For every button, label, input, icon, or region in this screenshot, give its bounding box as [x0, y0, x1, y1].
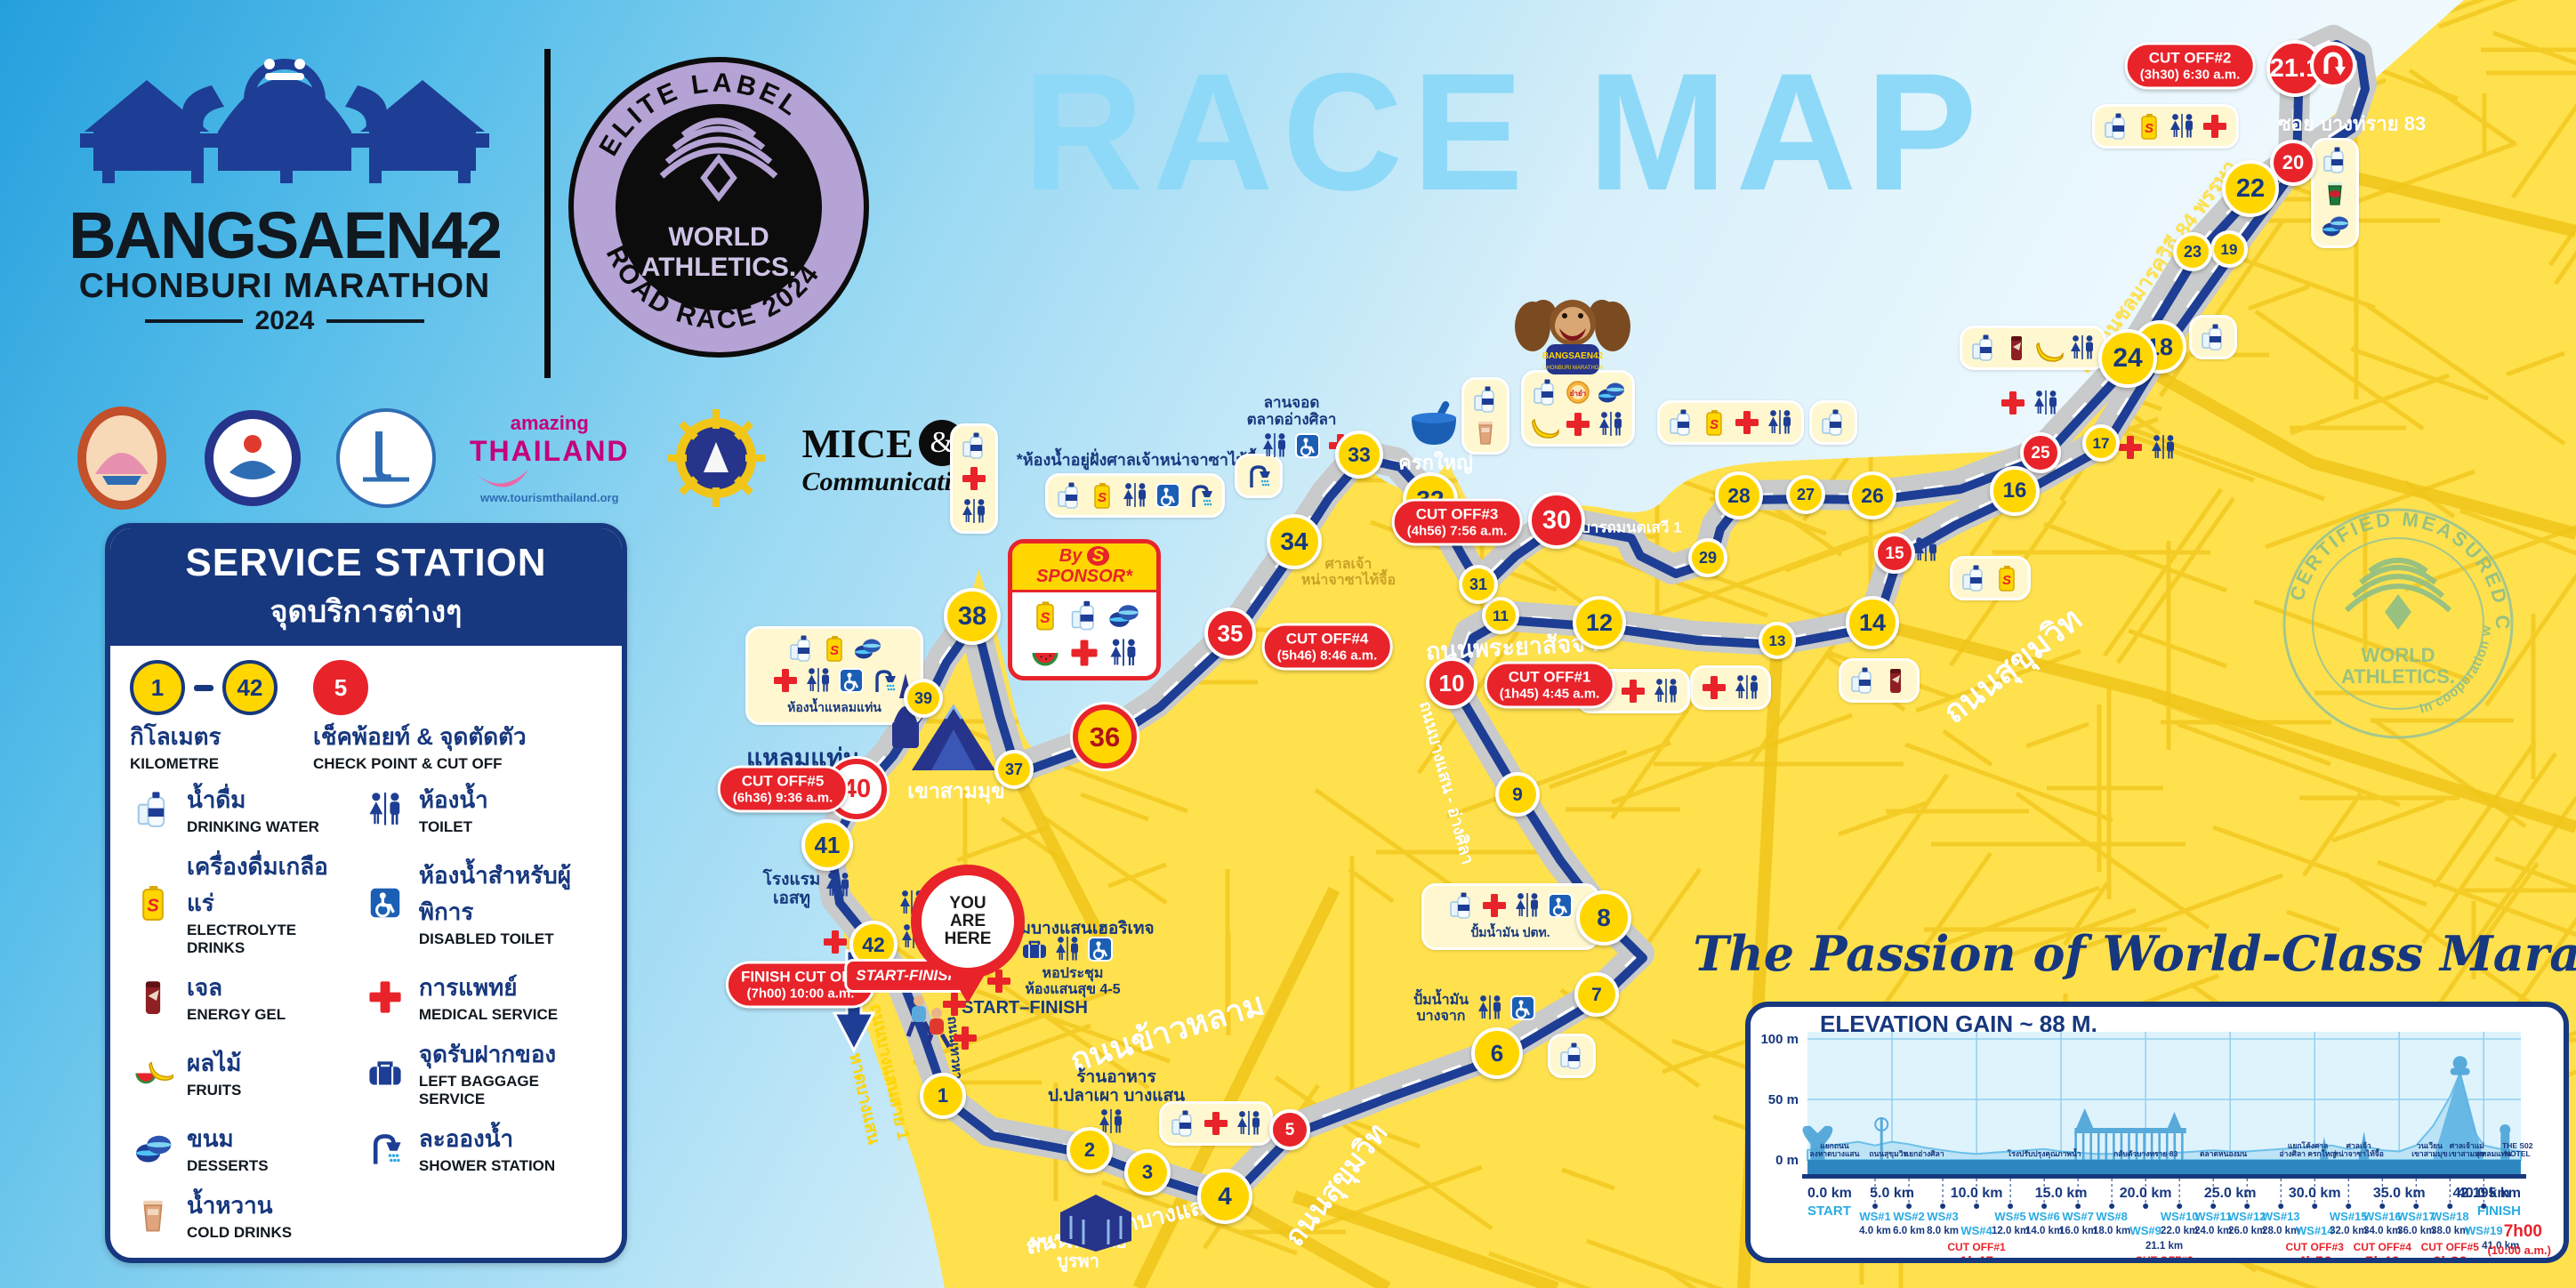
landmark-label-9: ปั้มน้ำมัน บางจาก	[1413, 993, 1469, 1025]
cutoff-label-co4: CUT OFF#4(5h46) 8:46 a.m.	[1262, 624, 1393, 671]
km-marker-19: 19	[2210, 230, 2248, 268]
mascot-temple-logo-icon	[53, 18, 516, 205]
km-marker-3: 3	[1124, 1149, 1171, 1195]
svg-text:WS#7: WS#7	[2062, 1210, 2093, 1223]
u-turn-icon	[2310, 42, 2356, 88]
km-marker-27: 27	[1786, 475, 1825, 514]
service-box-8: ยำยำ	[1521, 370, 1635, 447]
water-icon	[1446, 890, 1477, 921]
svg-text:WS#14: WS#14	[2296, 1224, 2334, 1237]
legend-item-drinking-water: น้ำดื่มDRINKING WATER	[130, 782, 339, 836]
partner-logos-row: amazing THAILAND www.tourismthailand.org…	[76, 405, 980, 511]
svg-text:WS#1: WS#1	[1859, 1210, 1890, 1223]
logo-subtitle: CHONBURI MARATHON	[53, 267, 516, 306]
svg-text:WS#16: WS#16	[2363, 1210, 2402, 1223]
macarons-icon	[130, 1128, 176, 1169]
legend-item-toilet: ห้องน้ำTOILET	[362, 782, 602, 836]
km-marker-11: 11	[1482, 597, 1519, 634]
dash-icon	[194, 685, 213, 691]
svg-text:28.0 km: 28.0 km	[2262, 1226, 2299, 1236]
toilet-icon	[1052, 934, 1083, 964]
water-icon	[1666, 407, 1696, 438]
legend-kilometre-item: 1 42 กิโลเมตร KILOMETRE	[130, 660, 278, 773]
legend-item-energy-gel: เจลENERGY GEL	[130, 970, 339, 1024]
water-icon	[1054, 480, 1084, 511]
toilet-icon	[1260, 431, 1290, 461]
cutoff-label-co3: CUT OFF#3(4h56) 7:56 a.m.	[1392, 499, 1523, 546]
service-box-6: S	[1657, 400, 1804, 445]
svg-text:S: S	[1710, 417, 1719, 432]
electrolyte-icon: S	[1699, 407, 1729, 438]
svg-text:16.0 km: 16.0 km	[2059, 1226, 2097, 1236]
km-marker-30: 30	[1528, 492, 1585, 549]
svg-text:WS#18: WS#18	[2431, 1210, 2469, 1223]
km-marker-15: 15	[1874, 533, 1915, 574]
gel-icon	[130, 977, 176, 1018]
svg-text:10.0 km: 10.0 km	[1951, 1186, 2003, 1201]
svg-text:14.0 km: 14.0 km	[2025, 1226, 2063, 1236]
service-box-20: S	[1045, 473, 1225, 518]
toilet-icon	[1234, 1108, 1264, 1139]
km-marker-37: 37	[994, 750, 1034, 789]
water-icon	[130, 789, 176, 830]
svg-text:ลงหาดบางแสน: ลงหาดบางแสน	[1809, 1149, 1859, 1158]
legend-body: 1 42 กิโลเมตร KILOMETRE 5 เช็คพ้อยท์ & จ…	[110, 646, 622, 1258]
legend-km-last-badge: 42	[222, 660, 278, 715]
landmark-label-8: ร้านอาหาร ป.ปลาเผา บางแสน	[1048, 1068, 1185, 1107]
service-box-14	[1159, 1101, 1273, 1146]
km-marker-9: 9	[1495, 772, 1540, 817]
svg-text:0 m: 0 m	[1775, 1153, 1799, 1168]
legend-km-first-badge: 1	[130, 660, 185, 715]
legend-item-cold-drinks: น้ำหวานCOLD DRINKS	[130, 1187, 339, 1242]
svg-text:WORLD: WORLD	[668, 222, 769, 252]
shower-icon	[1186, 480, 1216, 511]
svg-text:18.0 km: 18.0 km	[2093, 1226, 2130, 1236]
amazing-line2: THAILAND	[470, 435, 630, 468]
electrolyte-icon: S	[1992, 563, 2022, 593]
legend-items-grid: น้ำดื่มDRINKING WATER ห้องน้ำTOILET S เค…	[130, 782, 602, 1242]
water-icon	[1067, 599, 1101, 632]
svg-text:CUT OFF#3: CUT OFF#3	[2286, 1241, 2345, 1253]
water-icon	[2101, 111, 2131, 141]
svg-text:6h36: 6h36	[2433, 1253, 2467, 1258]
water-icon	[1530, 377, 1560, 407]
gel-icon	[2001, 333, 2032, 363]
water-icon	[2198, 322, 2228, 352]
km-marker-34: 34	[1267, 514, 1322, 569]
water-icon	[1470, 384, 1501, 415]
world-athletics-elite-label-badge: ELITE LABEL ROAD RACE 2024 WORLD ATHLETI…	[559, 43, 879, 372]
toilet-icon	[1732, 672, 1762, 703]
km-marker-23: 23	[2173, 232, 2212, 271]
shower-icon	[362, 1128, 408, 1169]
legend-item-shower-station: ละอองน้ำSHOWER STATION	[362, 1121, 602, 1175]
electrolyte-icon: S	[2134, 111, 2164, 141]
you-are-here-pin: YOUAREHERE	[911, 865, 1025, 1003]
svg-text:เขาสามมุข: เขาสามมุข	[2411, 1149, 2448, 1159]
service-box-9	[1461, 377, 1509, 455]
km-marker-13: 13	[1759, 622, 1796, 659]
gorilla-decor: BANGSAEN42CHONBURI MARATHON	[1506, 293, 1639, 380]
km-marker-33: 33	[1335, 431, 1383, 479]
legend-cp-th: เช็คพ้อยท์ & จุดตัดตัว	[313, 719, 527, 755]
service-box-13	[1690, 665, 1771, 710]
svg-text:6.0 km: 6.0 km	[1893, 1226, 1925, 1236]
svg-text:S: S	[1098, 490, 1107, 505]
toilet-icon	[1120, 480, 1150, 511]
baggage-icon	[362, 1052, 408, 1093]
svg-text:21.1 km: 21.1 km	[2145, 1241, 2183, 1252]
toilet-icon	[803, 665, 833, 696]
toilet-icon	[2148, 432, 2178, 463]
svg-text:42.195 km: 42.195 km	[2452, 1186, 2521, 1201]
disabled-icon	[1292, 431, 1323, 461]
water-icon	[1818, 407, 1848, 438]
disabled-icon	[1508, 993, 1538, 1023]
legend-checkpoint-item: 5 เช็คพ้อยท์ & จุดตัดตัว CHECK POINT & C…	[313, 660, 527, 773]
km-marker-35: 35	[1204, 608, 1256, 659]
toilet-icon	[1475, 993, 1505, 1023]
landmark-label-1: เขาสามมุข	[907, 780, 1005, 803]
svg-text:7h00: 7h00	[2504, 1222, 2542, 1241]
page-title: RACE MAP	[1023, 36, 1986, 228]
water-icon	[959, 431, 989, 461]
svg-text:34.0 km: 34.0 km	[2363, 1226, 2401, 1236]
km-marker-29: 29	[1688, 538, 1727, 577]
svg-text:8.0 km: 8.0 km	[1927, 1226, 1959, 1236]
landmark-label-4: ศาลเจ้า หน่าจาซาไท้จื้อ	[1301, 557, 1396, 589]
km-marker-7: 7	[1574, 972, 1619, 1017]
medical-icon	[362, 977, 408, 1018]
toilet-icon	[823, 870, 853, 900]
service-box-17: ปั้มน้ำมัน ปตท.	[1421, 883, 1599, 950]
service-box-label: ห้องน้ำแหลมแท่น	[787, 698, 881, 718]
medical-icon	[770, 665, 801, 696]
km-marker-2: 2	[1067, 1127, 1113, 1173]
toilet-icon	[2067, 333, 2097, 363]
water-icon	[1847, 665, 1878, 696]
svg-text:4.0 km: 4.0 km	[1859, 1226, 1891, 1236]
disabled-icon	[365, 882, 406, 923]
landmark-label-11: *ห้องน้ำอยู่ฝั่งศาลเจ้าหน่าจาซาไท้จื้อ	[1017, 451, 1266, 469]
electrolyte-icon: S	[133, 882, 173, 923]
service-box-24	[1019, 934, 1115, 964]
legend-title-en: SERVICE STATION	[119, 541, 613, 585]
svg-text:32.0 km: 32.0 km	[2330, 1226, 2367, 1236]
legend-km-en: KILOMETRE	[130, 755, 278, 773]
medical-icon	[1618, 676, 1648, 706]
amazing-line1: amazing	[470, 412, 630, 435]
disabled-icon	[1545, 890, 1575, 921]
legend-item-left-baggage-service: จุดรับฝากของLEFT BAGGAGE SERVICE	[362, 1036, 602, 1108]
yumyum-icon: ยำยำ	[1563, 377, 1593, 407]
svg-text:WS#10: WS#10	[2161, 1210, 2199, 1223]
svg-text:ยำยำ: ยำยำ	[1570, 390, 1586, 398]
svg-text:35.0 km: 35.0 km	[2373, 1186, 2426, 1201]
toilet-icon	[365, 789, 406, 830]
svg-text:25.0 km: 25.0 km	[2204, 1186, 2257, 1201]
tourism-authority-of-thailand-seal-icon	[336, 408, 436, 508]
legend-item-disabled-toilet: ห้องน้ำสำหรับผู้พิการDISABLED TOILET	[362, 849, 602, 957]
medical-icon	[959, 463, 989, 494]
svg-text:WS#11: WS#11	[2194, 1210, 2232, 1223]
water-icon	[133, 789, 173, 830]
svg-text:50 m: 50 m	[1768, 1092, 1799, 1107]
svg-text:WS#5: WS#5	[1994, 1210, 2025, 1223]
toilet-icon	[2031, 388, 2061, 418]
km-marker-17: 17	[2082, 424, 2120, 462]
svg-text:ถนนสุขุมวิท: ถนนสุขุมวิท	[1869, 1149, 1908, 1159]
svg-text:ตลาดหนองมน: ตลาดหนองมน	[2200, 1149, 2247, 1158]
legend-km-th: กิโลเมตร	[130, 719, 278, 755]
medical-icon	[1998, 388, 2028, 418]
landmark-label-2: ครกใหญ่	[1398, 453, 1473, 475]
svg-text:20.0 km: 20.0 km	[2120, 1186, 2172, 1201]
km-marker-36: 36	[1073, 704, 1137, 769]
km-marker-31: 31	[1459, 565, 1498, 604]
macarons-icon	[133, 1128, 173, 1169]
sponsor-band: By S SPONSOR*	[1012, 543, 1156, 592]
electrolyte-icon: S	[1087, 480, 1117, 511]
divider	[544, 49, 551, 378]
service-box-16	[1475, 993, 1538, 1023]
gel-icon	[1880, 665, 1911, 696]
medical-icon	[1067, 636, 1101, 670]
elevation-chart-panel: ELEVATION GAIN ~ 88 M.แยกถนนลงหาดบางแสนถ…	[1745, 1002, 2569, 1263]
harbour-department-seal-icon	[664, 406, 769, 511]
svg-text:ATHLETICS.: ATHLETICS.	[2341, 665, 2455, 688]
svg-text:4h56: 4h56	[2298, 1253, 2332, 1258]
km-marker-6: 6	[1471, 1027, 1523, 1079]
toilet-icon	[1512, 890, 1542, 921]
svg-text:CHONBURI MARATHON: CHONBURI MARATHON	[1542, 366, 1603, 371]
legend-header: SERVICE STATION จุดบริการต่างๆ	[110, 528, 622, 646]
toilet-icon	[362, 789, 408, 830]
chonburi-province-seal-icon	[76, 405, 169, 511]
sponsor-service-box: By S SPONSOR* S	[1008, 539, 1161, 680]
macarons-icon	[2320, 211, 2350, 241]
svg-text:CUT OFF#5: CUT OFF#5	[2421, 1241, 2480, 1253]
svg-text:15.0 km: 15.0 km	[2035, 1186, 2088, 1201]
water-icon	[1557, 1041, 1587, 1071]
cutoff-label-co1: CUT OFF#1(1h45) 4:45 a.m.	[1485, 662, 1615, 709]
service-box-label: ปั้มน้ำมัน ปตท.	[1470, 923, 1550, 943]
service-box-3	[2189, 315, 2237, 359]
km-marker-1: 1	[920, 1073, 966, 1119]
milo-icon	[2320, 178, 2350, 208]
water-icon	[1168, 1108, 1198, 1139]
svg-text:กลับตัวบางทราย 83: กลับตัวบางทราย 83	[2113, 1149, 2178, 1158]
legend-item-medical-service: การแพทย์MEDICAL SERVICE	[362, 970, 602, 1024]
service-box-12	[1839, 658, 1920, 703]
svg-text:WS#17: WS#17	[2397, 1210, 2435, 1223]
amazing-thailand-logo: amazing THAILAND www.tourismthailand.org	[470, 412, 630, 504]
macarons-icon	[1596, 377, 1626, 407]
water-icon	[1968, 333, 1999, 363]
gel-icon	[133, 977, 173, 1018]
mortar-decor	[1403, 398, 1465, 452]
svg-text:5.0 km: 5.0 km	[1870, 1186, 1914, 1201]
tagline: The Passion of World-Class Marathon	[1693, 925, 2576, 982]
service-box-1	[2311, 138, 2359, 248]
svg-text:WS#9: WS#9	[2129, 1224, 2161, 1237]
km-marker-10: 10	[1426, 657, 1477, 709]
svg-text:แยกอ่างศิลา: แยกอ่างศิลา	[1904, 1149, 1944, 1158]
km-marker-39: 39	[904, 679, 943, 718]
svg-text:(10:00 a.m.): (10:00 a.m.)	[2487, 1244, 2551, 1257]
toilet-icon	[1651, 676, 1681, 706]
svg-text:CUT OFF#2: CUT OFF#2	[2135, 1254, 2194, 1258]
logo-year: 2024	[53, 306, 516, 336]
svg-text:S: S	[830, 643, 839, 658]
mice-word: MICE	[802, 420, 914, 467]
water-icon	[2320, 145, 2350, 175]
km-marker-5: 5	[1269, 1109, 1310, 1150]
svg-text:0.0 km: 0.0 km	[1807, 1186, 1852, 1201]
legend-item-fruits: ผลไม้FRUITS	[130, 1036, 339, 1108]
water-icon	[1959, 563, 1989, 593]
electrolyte-icon: S	[819, 633, 849, 664]
toilet-icon	[2167, 111, 2197, 141]
amazing-url: www.tourismthailand.org	[470, 491, 630, 504]
km-marker-4: 4	[1197, 1169, 1252, 1224]
elevation-chart: ELEVATION GAIN ~ 88 M.แยกถนนลงหาดบางแสนถ…	[1751, 1007, 2564, 1258]
km-marker-22: 22	[2222, 160, 2279, 217]
km-marker-26: 26	[1848, 471, 1896, 519]
legend-item-desserts: ขนมDESSERTS	[130, 1121, 339, 1175]
svg-text:หน่าจาซาไท้จื้อ: หน่าจาซาไท้จื้อ	[2333, 1147, 2383, 1158]
medical-icon	[1732, 407, 1762, 438]
svg-text:1h45: 1h45	[1960, 1253, 1994, 1258]
toilet-icon	[1765, 407, 1795, 438]
fruits-icon	[133, 1052, 173, 1093]
landmark-label-5: โรงแรม เอสทู	[763, 871, 821, 909]
baggage-icon	[365, 1052, 406, 1093]
km-marker-14: 14	[1846, 596, 1899, 649]
svg-text:WS#8: WS#8	[2096, 1210, 2127, 1223]
legend-item-electrolyte-drinks: S เครื่องดื่มเกลือแร่ELECTROLYTE DRINKS	[130, 849, 339, 957]
landmark-label-3: ลานจอด ตลาดอ่างศิลา	[1247, 394, 1337, 428]
watermelon-icon	[1028, 636, 1062, 670]
legend-title-th: จุดบริการต่างๆ	[119, 587, 613, 635]
medical-icon	[2200, 111, 2230, 141]
macarons-icon	[1107, 599, 1140, 632]
service-box-0: S	[2092, 104, 2239, 149]
svg-text:WS#19: WS#19	[2465, 1224, 2503, 1237]
svg-text:WS#15: WS#15	[2330, 1210, 2368, 1223]
service-station-legend: SERVICE STATION จุดบริการต่างๆ 1 42 กิโล…	[105, 523, 627, 1263]
building-decor	[1053, 1189, 1139, 1252]
disabled-icon	[836, 665, 866, 696]
medical-icon	[1201, 1108, 1231, 1139]
disabled-icon	[1085, 934, 1115, 964]
saensuk-municipality-seal-icon	[203, 408, 302, 508]
toilet-icon	[1911, 535, 1941, 565]
service-box-4	[2115, 432, 2178, 463]
medical-icon	[1699, 672, 1729, 703]
svg-text:อ่างศิลา ครกใหญ่: อ่างศิลา ครกใหญ่	[2280, 1149, 2337, 1159]
legend-cp-en: CHECK POINT & CUT OFF	[313, 755, 527, 773]
medical-icon	[1563, 409, 1593, 439]
svg-text:S: S	[147, 896, 159, 915]
svg-text:WS#4: WS#4	[1960, 1224, 1992, 1237]
svg-text:S: S	[2002, 573, 2011, 588]
svg-text:WS#6: WS#6	[2028, 1210, 2059, 1223]
colddrink-icon	[133, 1195, 173, 1236]
svg-text:WORLD: WORLD	[2361, 644, 2435, 666]
service-box-11: S	[1950, 556, 2031, 600]
svg-text:START: START	[1807, 1203, 1851, 1219]
svg-text:โรงปรับปรุงคุณภาพน้ำ: โรงปรับปรุงคุณภาพน้ำ	[2007, 1147, 2081, 1159]
svg-text:5h46: 5h46	[2365, 1253, 2400, 1258]
svg-text:S: S	[2145, 121, 2153, 136]
svg-text:BANGSAEN42: BANGSAEN42	[1542, 351, 1604, 361]
km-marker-25: 25	[2020, 432, 2061, 473]
svg-text:S: S	[1040, 609, 1050, 626]
svg-text:26.0 km: 26.0 km	[2228, 1226, 2266, 1236]
banana-icon	[1530, 409, 1560, 439]
km-marker-28: 28	[1715, 471, 1763, 519]
toilet-icon	[1596, 409, 1626, 439]
service-box-10	[1911, 535, 1941, 565]
banana-icon	[2034, 333, 2065, 363]
macarons-icon	[852, 633, 882, 664]
svg-text:WS#13: WS#13	[2262, 1210, 2300, 1223]
svg-text:WS#2: WS#2	[1893, 1210, 1924, 1223]
legend-checkpoint-badge: 5	[313, 660, 368, 715]
colddrink-icon	[1470, 417, 1501, 447]
medical-icon	[2115, 432, 2145, 463]
medical-icon	[1479, 890, 1509, 921]
race-map-poster: RACE MAP BANGSAEN42 CHONBURI MARATHON 20…	[0, 0, 2576, 1288]
svg-text:22.0 km: 22.0 km	[2161, 1226, 2198, 1236]
svg-text:HOTEL: HOTEL	[2505, 1149, 2531, 1158]
landmark-label-7: หอประชุม ห้องแสนสุข 4-5	[1025, 966, 1120, 998]
svg-text:38.0 km: 38.0 km	[2431, 1226, 2468, 1236]
svg-text:36.0 km: 36.0 km	[2397, 1226, 2435, 1236]
svg-text:12.0 km: 12.0 km	[1992, 1226, 2029, 1236]
shower-icon	[1244, 461, 1274, 491]
toilet-icon	[1107, 636, 1140, 670]
certified-measured-course-stamp: CERTIFIED MEASURED COURSE In cooperation…	[2274, 495, 2523, 753]
svg-text:CUT OFF#4: CUT OFF#4	[2354, 1241, 2412, 1253]
disabled-icon	[362, 882, 408, 923]
svg-text:ATHLETICS.: ATHLETICS.	[641, 253, 796, 282]
fruits-icon	[130, 1052, 176, 1093]
colddrink-icon	[130, 1195, 176, 1236]
km-marker-41: 41	[801, 819, 853, 871]
km-marker-38: 38	[944, 588, 1001, 645]
cutoff-label-co2: CUT OFF#2(3h30) 6:30 a.m.	[2125, 43, 2256, 90]
svg-text:WS#3: WS#3	[1927, 1210, 1958, 1223]
svg-text:24.0 km: 24.0 km	[2194, 1226, 2232, 1236]
electrolyte-icon: S	[130, 882, 176, 923]
event-logo: BANGSAEN42 CHONBURI MARATHON 2024	[53, 18, 516, 336]
service-box-7	[1809, 400, 1857, 445]
disabled-icon	[1153, 480, 1183, 511]
svg-text:WS#12: WS#12	[2228, 1210, 2266, 1223]
amazing-swoosh-icon	[470, 468, 532, 491]
svg-text:CUT OFF#1: CUT OFF#1	[1947, 1241, 2006, 1253]
electrolyte-icon: S	[1028, 599, 1062, 632]
shower-icon	[365, 1128, 406, 1169]
km-marker-24: 24	[2098, 329, 2157, 388]
logo-title: BANGSAEN42	[53, 205, 516, 267]
service-box-15	[1548, 1034, 1596, 1078]
water-icon	[786, 633, 817, 664]
service-box-31	[823, 870, 853, 900]
